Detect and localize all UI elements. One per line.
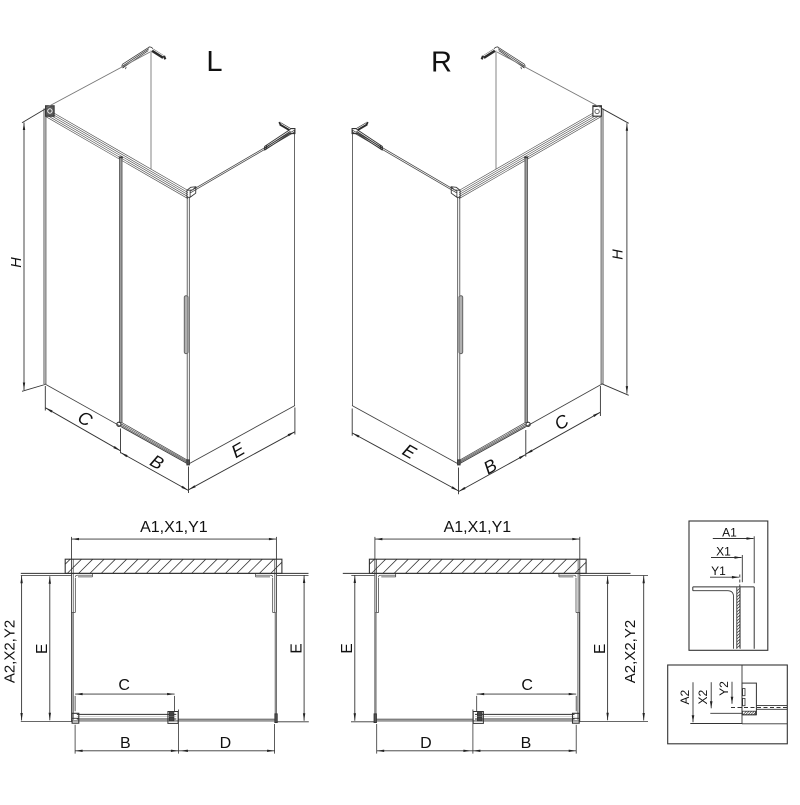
svg-text:A2: A2	[678, 689, 692, 704]
svg-text:C: C	[118, 677, 130, 694]
svg-text:E: E	[339, 643, 356, 653]
svg-text:E: E	[34, 644, 51, 654]
svg-text:Y2: Y2	[717, 681, 731, 696]
svg-text:D: D	[420, 735, 432, 752]
svg-text:A2,X2,Y2: A2,X2,Y2	[622, 620, 639, 683]
svg-text:D: D	[220, 735, 232, 752]
svg-text:Y1: Y1	[711, 564, 726, 578]
svg-text:B: B	[521, 735, 532, 752]
svg-text:H: H	[610, 249, 626, 260]
svg-text:X2: X2	[696, 689, 710, 704]
svg-text:B: B	[120, 735, 131, 752]
svg-text:X1: X1	[716, 544, 731, 558]
svg-text:R: R	[431, 47, 452, 79]
svg-text:E: E	[289, 643, 306, 653]
svg-text:A2,X2,Y2: A2,X2,Y2	[1, 620, 18, 683]
svg-text:C: C	[521, 677, 533, 694]
svg-text:A1,X1,Y1: A1,X1,Y1	[444, 519, 512, 536]
svg-text:A1: A1	[722, 525, 737, 539]
svg-text:H: H	[9, 257, 25, 268]
svg-text:A1,X1,Y1: A1,X1,Y1	[140, 519, 208, 536]
svg-text:E: E	[592, 644, 609, 654]
svg-text:L: L	[206, 46, 222, 78]
